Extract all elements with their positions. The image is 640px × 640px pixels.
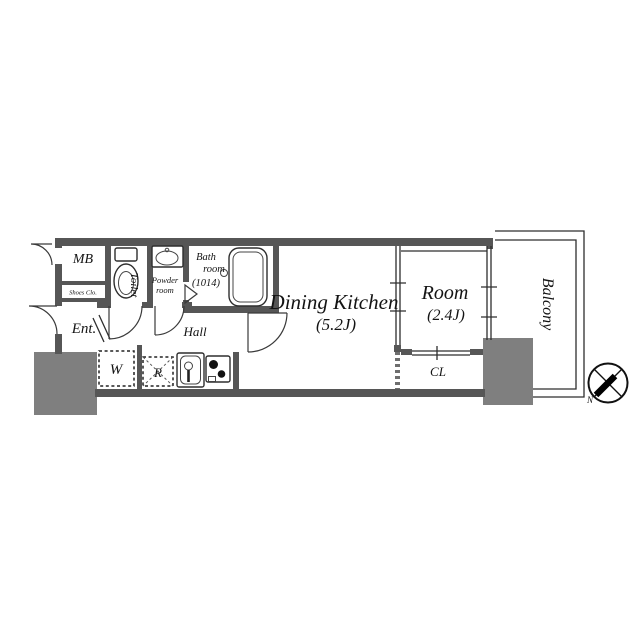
wall-top	[55, 238, 493, 246]
wall-dk-room-stub	[394, 345, 401, 352]
floor-plan: N MB Shoes Clo. Ent. Toilet Powder room …	[0, 0, 640, 640]
label-toilet: Toilet	[128, 273, 140, 299]
label-bath-3: (1014)	[192, 278, 220, 289]
label-bath-1: Bath	[196, 252, 216, 263]
label-shoes-closet: Shoes Clo.	[69, 290, 97, 297]
wall-bath-bottom	[183, 306, 279, 313]
wall-left-mid	[55, 264, 62, 306]
label-meter-box: MB	[72, 252, 94, 267]
wall-mb-divider	[62, 281, 105, 285]
wall-left-upper	[55, 238, 62, 248]
pillar-left	[34, 352, 97, 415]
compass-north-label: N	[586, 395, 594, 405]
stove-top	[206, 356, 230, 382]
bathtub-outer	[229, 248, 267, 306]
wall-shoes-divider	[62, 298, 105, 302]
wall-powder-bath	[183, 246, 189, 282]
wall-stub-ent	[97, 302, 107, 308]
stove-burner-2	[218, 370, 226, 378]
label-balcony: Balcony	[539, 278, 556, 331]
toilet-tank	[115, 248, 137, 261]
label-entrance: Ent.	[71, 321, 97, 337]
label-closet: CL	[430, 364, 446, 379]
wall-bottom	[95, 389, 485, 397]
label-room: Room	[421, 282, 469, 304]
pillar-right	[483, 338, 533, 405]
label-powder-2: room	[156, 285, 174, 295]
stove-icon	[206, 356, 230, 382]
wall-stub-toilet	[142, 302, 153, 308]
label-washer: W	[110, 362, 124, 378]
wall-washer-stub	[137, 345, 142, 389]
wall-left-lower	[55, 334, 62, 354]
wall-cl-stub-right	[470, 349, 483, 355]
wall-mb-column	[105, 246, 111, 308]
stove-burner-1	[209, 360, 218, 369]
vanity-sink-icon	[152, 246, 183, 267]
wall-top-cap	[487, 238, 493, 249]
label-hall: Hall	[182, 324, 207, 339]
label-dining-kitchen-area: (5.2J)	[316, 315, 356, 334]
label-bath-2: room	[203, 264, 225, 275]
wall-kitchen-stub	[233, 352, 239, 389]
kitchen-sink-icon	[177, 353, 204, 387]
wall-cl-stub-left	[401, 349, 412, 355]
floor-plan-page: N MB Shoes Clo. Ent. Toilet Powder room …	[0, 0, 640, 640]
label-room-area: (2.4J)	[427, 307, 465, 324]
label-powder-1: Powder	[151, 275, 179, 285]
label-refrigerator: R	[153, 365, 162, 380]
label-dining-kitchen: Dining Kitchen	[269, 290, 399, 314]
